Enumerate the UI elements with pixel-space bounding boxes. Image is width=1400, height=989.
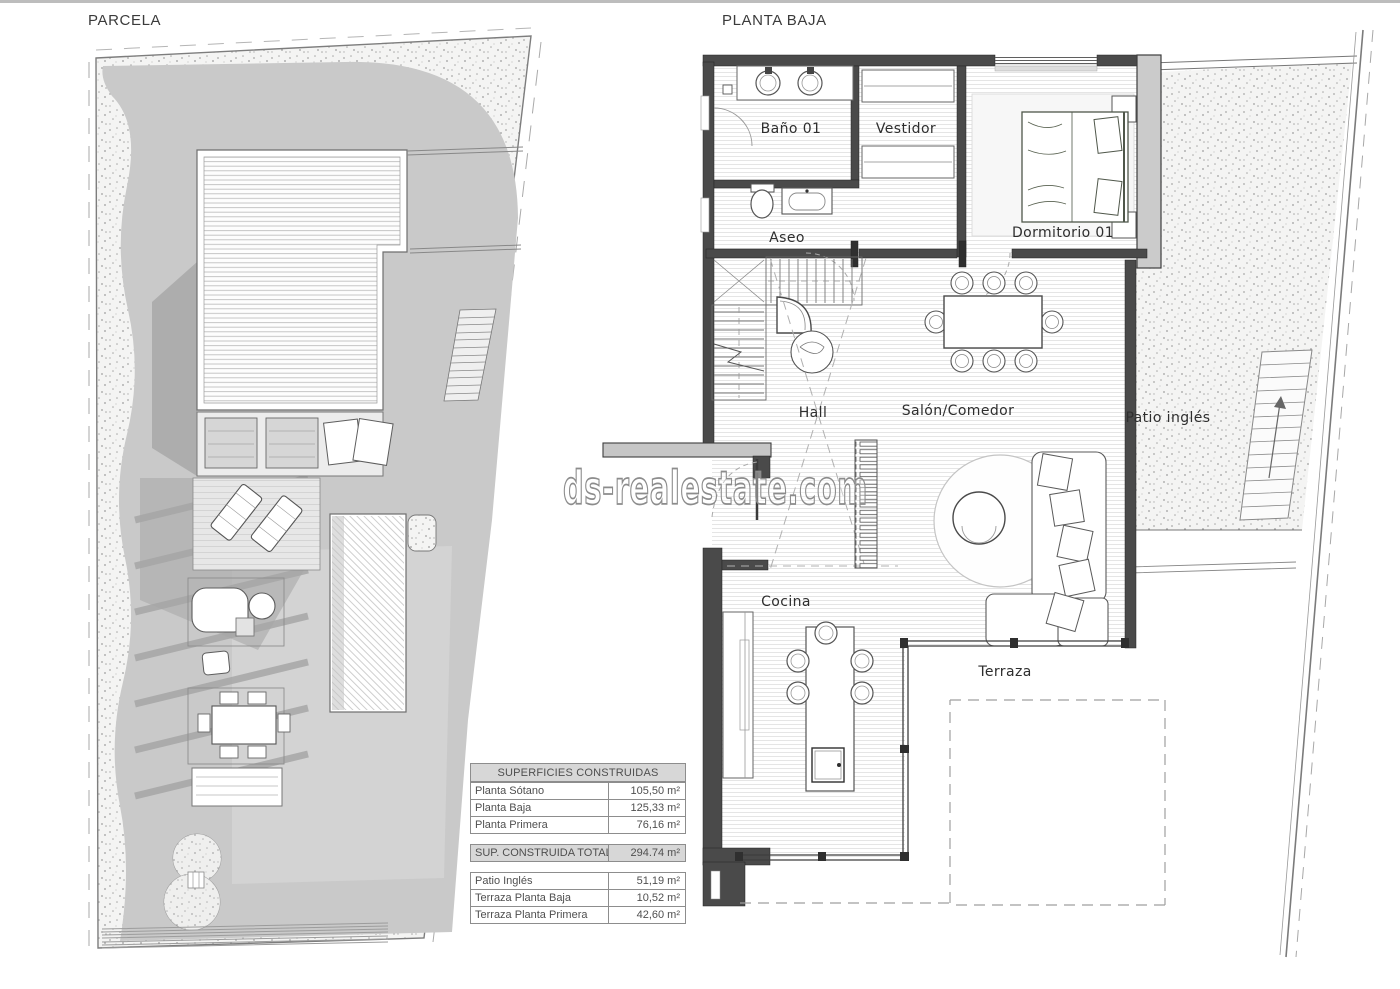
row-value: 76,16 m²: [609, 817, 685, 833]
row-label: SUP. CONSTRUIDA TOTAL: [471, 845, 609, 861]
table-row: Planta Baja 125,33 m²: [471, 799, 685, 816]
total-group: SUP. CONSTRUIDA TOTAL 294.74 m²: [470, 844, 686, 862]
room-label-hall: Hall: [799, 405, 828, 421]
row-value: 294.74 m²: [609, 845, 685, 861]
room-label-dormitorio: Dormitorio 01: [1012, 225, 1114, 241]
row-value: 105,50 m²: [609, 783, 685, 799]
room-label-patio: Patio inglés: [1125, 410, 1210, 426]
table-row: Terraza Planta Baja 10,52 m²: [471, 889, 685, 906]
room-label-vestidor: Vestidor: [876, 121, 936, 137]
table-row: Terraza Planta Primera 42,60 m²: [471, 906, 685, 923]
deck-loungers: [193, 478, 320, 570]
row-label: Planta Primera: [471, 817, 609, 833]
row-value: 42,60 m²: [609, 907, 685, 923]
room-label-salon: Salón/Comedor: [902, 403, 1015, 419]
row-value: 125,33 m²: [609, 800, 685, 816]
row-value: 10,52 m²: [609, 890, 685, 906]
table-row: Planta Sótano 105,50 m²: [471, 782, 685, 799]
areas-table-header: SUPERFICIES CONSTRUIDAS: [471, 764, 685, 782]
plans-canvas: Baño 01 Vestidor Aseo Dormitorio 01 Hall…: [0, 0, 1400, 989]
areas-table: SUPERFICIES CONSTRUIDAS Planta Sótano 10…: [470, 763, 686, 934]
row-label: Terraza Planta Primera: [471, 907, 609, 923]
row-label: Planta Sótano: [471, 783, 609, 799]
row-label: Planta Baja: [471, 800, 609, 816]
patio-ingles-area: [1128, 56, 1357, 573]
row-value: 51,19 m²: [609, 873, 685, 889]
table-row: Planta Primera 76,16 m²: [471, 816, 685, 833]
row-label: Patio Inglés: [471, 873, 609, 889]
room-label-terraza: Terraza: [977, 664, 1031, 680]
table-row: Patio Inglés 51,19 m²: [471, 873, 685, 889]
built-surfaces-group: SUPERFICIES CONSTRUIDAS Planta Sótano 10…: [470, 763, 686, 834]
bedroom-furniture: [972, 94, 1136, 238]
outdoor-surfaces-group: Patio Inglés 51,19 m² Terraza Planta Baj…: [470, 872, 686, 924]
room-label-aseo: Aseo: [769, 230, 805, 246]
room-label-bano: Baño 01: [761, 121, 822, 137]
roof-terrace-band: [197, 412, 393, 476]
watermark: ds-realestate.com: [563, 461, 868, 515]
room-label-cocina: Cocina: [761, 594, 811, 610]
table-row-total: SUP. CONSTRUIDA TOTAL 294.74 m²: [471, 845, 685, 861]
row-label: Terraza Planta Baja: [471, 890, 609, 906]
